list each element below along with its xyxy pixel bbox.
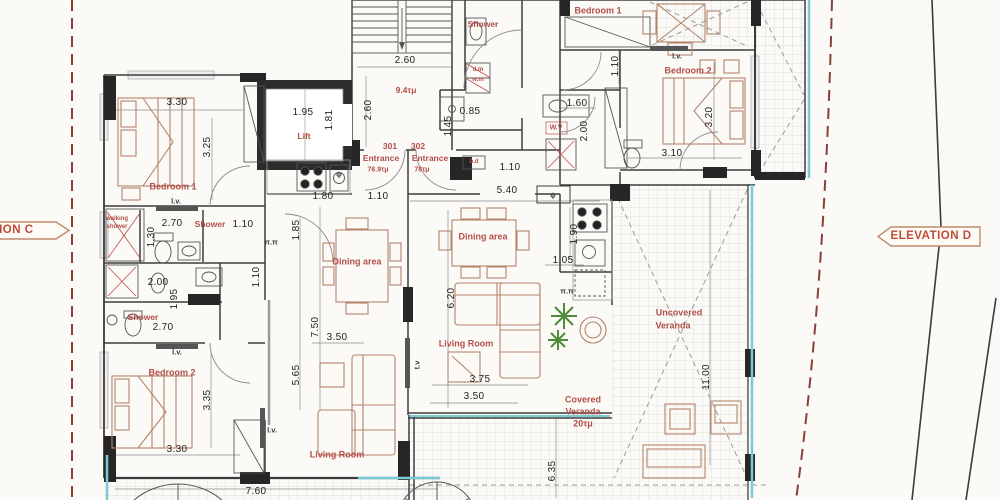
floor-plan-canvas: Bedroom 1Bedroom 2Bedroom 1Bedroom 2Dini… <box>0 0 1000 500</box>
elevation-banners <box>0 222 980 246</box>
elevation-d-label: ELEVATION D <box>885 228 977 245</box>
elevation-reference-lines <box>912 0 996 500</box>
elevation-c-label: ELEVATION C <box>0 222 56 239</box>
plant <box>548 303 577 350</box>
tv-stands <box>156 46 688 448</box>
floor-plan-drawing <box>0 0 1000 500</box>
fixtures <box>106 18 642 336</box>
staircase <box>352 0 452 53</box>
lift-shaft <box>257 80 352 170</box>
